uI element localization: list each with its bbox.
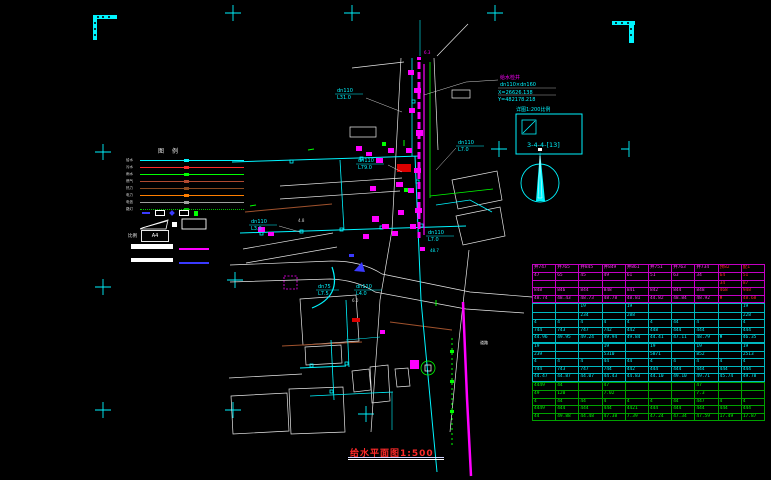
table-cell: 44 [579, 398, 602, 406]
legend-line-marker [184, 173, 189, 176]
blue-dash-symbol [142, 212, 150, 214]
table-cell [579, 390, 602, 398]
table-cell [719, 390, 742, 398]
table-cell: 444 [695, 327, 718, 335]
svg-text:L7.0: L7.0 [428, 237, 439, 243]
table-cell [695, 280, 718, 288]
table-cell: 744 [603, 366, 626, 374]
table-cell: 4 [649, 319, 672, 327]
table-cell: 63 [672, 272, 695, 280]
table-section: 1919192342882284444444444744743747742442… [532, 303, 765, 342]
table-cell: 井734 [695, 265, 718, 272]
table-cell: 743 [556, 327, 579, 335]
table-row: 44494444444444421444444444444444 [533, 405, 764, 413]
table-cell: 44.07 [579, 373, 602, 381]
table-cell: 4 [672, 358, 695, 366]
legend-line-sample [140, 195, 244, 196]
table-row: 444444444444744 [533, 398, 764, 406]
table-cell: 848 [533, 287, 556, 295]
table-cell: 4 [695, 319, 718, 327]
pipe-dimension-labels: dn110L31.0 dn110L79.0 dn110L3.0 dn75L7.5… [249, 88, 484, 297]
table-cell [672, 344, 695, 351]
table-row: 239531058718522513 [533, 351, 764, 359]
brown-utility-lines [245, 204, 452, 346]
table-cell [695, 312, 718, 320]
table-cell: 444 [672, 366, 695, 374]
table-cell [719, 312, 742, 320]
legend-entry-label: 给水 [126, 158, 140, 163]
table-cell: 4 [533, 398, 556, 406]
title-underline [348, 459, 444, 460]
green-mark-symbol [194, 211, 198, 216]
table-cell: 228 [742, 312, 764, 320]
table-cell: 444 [649, 405, 672, 413]
table-cell: 48.92 [695, 295, 718, 303]
table-cell: 49 [533, 390, 556, 398]
table-cell: 61 [626, 272, 649, 280]
table-cell: 744 [533, 327, 556, 335]
hydrant-box [425, 365, 431, 371]
legend-entry-label: 热力 [126, 186, 140, 191]
blue-line-sample [179, 262, 209, 264]
pipe-label: dn110L4.0 [354, 284, 382, 297]
table-cell: 444 [695, 405, 718, 413]
legend-line-sample [140, 188, 244, 189]
sheet-title: 给水平面图1:500 [350, 446, 434, 459]
legend-entry-label: 污水 [126, 165, 140, 170]
table-row: 48.7448.4348.7348.7848.8144.8248.8448.92… [533, 295, 764, 303]
table-cell: 47 [695, 383, 718, 390]
table-row: 848846844848841842844848468948 [533, 287, 764, 295]
table-cell: 444 [672, 327, 695, 335]
table-cell: 468 [719, 287, 742, 295]
frame-corner-top-right [612, 21, 635, 43]
table-cell: 48.73 [579, 295, 602, 303]
table-cell: 19 [533, 344, 556, 351]
table-cell [742, 383, 764, 390]
table-cell: 井845 [579, 265, 602, 272]
table-cell [556, 344, 579, 351]
table-cell: 47 [603, 383, 626, 390]
table-cell: 44 [556, 398, 579, 406]
table-cell [556, 280, 579, 288]
table-cell [649, 304, 672, 311]
table-cell: 19 [579, 304, 602, 311]
svg-text:L4.0: L4.0 [356, 291, 367, 297]
table-cell: 47.59 [695, 413, 718, 421]
scattered-elevation-texts: 4.8 6.0 48.7 6.3 道路 [298, 50, 488, 345]
table-cell: 44 [672, 398, 695, 406]
elevation-text: 6.3 [424, 50, 431, 55]
legend-scale-row: 比例 A4 [128, 230, 169, 242]
table-cell: 44.41 [649, 334, 672, 342]
table-cell: 47.38 [603, 413, 626, 421]
table-cell: 34 [695, 272, 718, 280]
table-cell: 49.94 [603, 334, 626, 342]
legend-line-sample [140, 160, 244, 161]
table-cell: 49.95 [556, 334, 579, 342]
table-cell: 4 [742, 319, 764, 327]
table-cell: 444 [649, 366, 672, 374]
table-cell: 47 [533, 272, 556, 280]
table-cell: 井765 [556, 265, 579, 272]
table-cell [672, 390, 695, 398]
table-cell [719, 351, 742, 359]
table-cell: 47.24 [649, 413, 672, 421]
legend-line-sample [140, 167, 244, 168]
table-cell: 49.10 [672, 373, 695, 381]
table-row: 4449444747 [533, 383, 764, 390]
table-cell: 4449 [533, 405, 556, 413]
svg-text:dn110: dn110 [428, 230, 444, 236]
table-cell: 49.71 [695, 373, 718, 381]
table-cell: 4 [533, 319, 556, 327]
legend-scale-bars [131, 244, 209, 267]
scale-label: 比例 [128, 233, 137, 239]
table-row: 47654549615163346451 [533, 272, 764, 280]
table-cell: 井849 [603, 265, 626, 272]
table-cell [672, 383, 695, 390]
table-row: 234288228 [533, 312, 764, 320]
legend-line-sample [140, 174, 244, 175]
table-cell [649, 280, 672, 288]
table-cell [719, 327, 742, 335]
table-cell [556, 312, 579, 320]
title-underline [348, 457, 444, 458]
annotation-well-name: 给水检井 [500, 74, 520, 81]
table-cell [603, 280, 626, 288]
red-features [352, 164, 411, 322]
table-cell: 7.3 [695, 390, 718, 398]
table-section: 4449444747491207.027.3444444444444744444… [532, 382, 765, 421]
legend-entry-label: 电信 [126, 200, 140, 205]
table-cell: 4 [603, 319, 626, 327]
svg-text:dn110: dn110 [358, 158, 374, 164]
magenta-line-sample [179, 248, 209, 250]
north-arrow [521, 148, 559, 202]
table-cell: 44.87 [556, 373, 579, 381]
legend-line-marker [184, 159, 189, 162]
table-cell: 49.84 [626, 334, 649, 342]
table-row: 4449.8844.4847.387.3947.2447.3447.5917.4… [533, 413, 764, 421]
table-cell: 444 [742, 405, 764, 413]
road-label: 道路 [480, 339, 488, 345]
legend-entry-label: 雨水 [126, 172, 140, 177]
table-cell: 444 [603, 405, 626, 413]
pipe-label: dn75L7.5 [316, 284, 339, 297]
table-row: 1919191919 [533, 344, 764, 351]
table-cell: 5310 [603, 351, 626, 359]
table-cell: 预82 [719, 265, 742, 272]
table-row: 44.4744.8744.0744.4344.8344.1049.1049.71… [533, 373, 764, 381]
table-cell [556, 304, 579, 311]
table-cell: 447 [695, 398, 718, 406]
table-cell: 44 [672, 319, 695, 327]
table-cell [626, 390, 649, 398]
table-cell: 288 [626, 312, 649, 320]
table-row: 4444444444 [533, 319, 764, 327]
table-cell: 444 [719, 405, 742, 413]
table-cell: 48.81 [626, 295, 649, 303]
table-cell: 井751 [649, 265, 672, 272]
annotation-x-coord: X=26626.138 [498, 90, 533, 96]
table-cell: 51 [649, 272, 672, 280]
table-cell [579, 383, 602, 390]
table-cell [579, 280, 602, 288]
legend-lines: 给水污水雨水燃气热力电力电信路灯 [126, 157, 244, 213]
table-cell [672, 312, 695, 320]
table-cell: 444 [579, 405, 602, 413]
table-cell: 配1 [742, 265, 764, 272]
table-cell: 120 [556, 390, 579, 398]
table-row: 491207.027.3 [533, 390, 764, 398]
table-cell: 44.10 [649, 373, 672, 381]
table-cell: 742 [603, 327, 626, 335]
table-cell: 49.78 [742, 373, 764, 381]
table-cell: 49.88 [556, 413, 579, 421]
legend-line-marker [184, 201, 189, 204]
table-cell: 44 [603, 358, 626, 366]
table-cell: 65 [556, 272, 579, 280]
table-cell: 井747 [533, 265, 556, 272]
table-cell: 井861 [626, 265, 649, 272]
table-cell: 44 [556, 383, 579, 390]
table-cell: 井763 [672, 265, 695, 272]
table-cell: 7.39 [626, 413, 649, 421]
coordinate-annotation: 给水检井 dn110×dn160 X=26626.138 Y=482178.21… [497, 74, 556, 103]
table-cell: 44.48 [579, 413, 602, 421]
table-cell: 19 [742, 304, 764, 311]
table-cell: 64 [719, 272, 742, 280]
table-row: 444444444444 [533, 358, 764, 366]
table-cell: 448 [649, 327, 672, 335]
svg-text:L79.0: L79.0 [358, 165, 372, 171]
table-cell: 852 [695, 351, 718, 359]
magenta-hatch-blobs [258, 57, 425, 369]
table-cell: 4 [626, 319, 649, 327]
table-row: 44.9649.9549.2449.9449.8444.4147.1148.79… [533, 334, 764, 342]
table-cell: 48.68 [742, 295, 764, 303]
svg-text:L31.0: L31.0 [337, 95, 351, 101]
detail-reference-box: 详图1:200比例 3-4-4-[13] [516, 106, 582, 154]
table-row: 744743747744442444444444444444 [533, 366, 764, 374]
table-cell: 848 [603, 287, 626, 295]
table-cell [626, 351, 649, 359]
table-section: 井747井765井845井849井861井751井763井734预82配1476… [532, 264, 765, 303]
table-cell: 19 [742, 344, 764, 351]
paper-size-box: A4 [141, 230, 169, 242]
table-cell: 19 [626, 304, 649, 311]
table-section: 1919191919239531058718522513444444444444… [532, 343, 765, 382]
table-row: 井747井765井845井849井861井751井763井734预82配1 [533, 265, 764, 272]
cad-viewport: 给水检井 dn110×dn160 X=26626.138 Y=482178.21… [0, 0, 771, 480]
table-cell: 744 [533, 366, 556, 374]
table-cell: 442 [626, 327, 649, 335]
table-cell [649, 312, 672, 320]
table-cell: 747 [579, 366, 602, 374]
table-cell: 87 [742, 280, 764, 288]
table-cell: 34 [719, 280, 742, 288]
legend-entry-label: 路灯 [126, 207, 140, 212]
leader-lines [279, 80, 498, 232]
frame-corner-top-left [93, 15, 117, 40]
table-cell: 47.11 [672, 334, 695, 342]
elevation-text: 48.7 [430, 248, 439, 253]
table-cell: 48.79 [695, 334, 718, 342]
table-cell: 4 [742, 358, 764, 366]
table-cell: 444 [672, 405, 695, 413]
table-cell [719, 304, 742, 311]
table-cell: 234 [579, 312, 602, 320]
table-cell: 442 [626, 366, 649, 374]
table-cell: 747 [579, 327, 602, 335]
table-cell: 444 [742, 327, 764, 335]
table-cell: 844 [672, 287, 695, 295]
table-cell: 49.24 [579, 334, 602, 342]
table-cell: 46.35 [742, 334, 764, 342]
table-cell: 4 [556, 358, 579, 366]
table-cell: 45.74 [719, 373, 742, 381]
table-cell [672, 351, 695, 359]
legend-line-marker [184, 194, 189, 197]
table-cell: 48.84 [672, 295, 695, 303]
table-cell: 49 [603, 272, 626, 280]
table-cell: 44 [533, 413, 556, 421]
table-cell: 743 [556, 366, 579, 374]
table-row: 744743747742442448444444444 [533, 327, 764, 335]
table-cell: 44.96 [533, 334, 556, 342]
table-cell [626, 344, 649, 351]
svg-text:dn110: dn110 [356, 284, 372, 290]
table-cell: 848 [695, 287, 718, 295]
table-cell: 842 [649, 287, 672, 295]
pipe-data-table: 井747井765井845井849井861井751井763井734预82配1476… [532, 264, 765, 421]
table-cell [603, 304, 626, 311]
legend-entry-label: 电力 [126, 193, 140, 198]
legend-line-marker [184, 166, 189, 169]
table-cell: 47.34 [672, 413, 695, 421]
table-cell: 4449 [533, 383, 556, 390]
table-cell: 844 [579, 287, 602, 295]
table-cell [603, 312, 626, 320]
table-cell: 44.83 [626, 373, 649, 381]
svg-text:dn110: dn110 [251, 219, 267, 225]
table-cell: Φ [719, 295, 742, 303]
table-cell: 4 [695, 358, 718, 366]
table-cell: 4 [579, 358, 602, 366]
table-cell: 4 [719, 358, 742, 366]
table-cell: 239 [533, 351, 556, 359]
svg-text:L3.0: L3.0 [251, 226, 262, 232]
table-cell: 19 [603, 344, 626, 351]
table-cell: 4 [579, 319, 602, 327]
table-cell: 48.78 [603, 295, 626, 303]
table-cell: 444 [556, 405, 579, 413]
table-cell: 444 [742, 366, 764, 374]
detail-box-code: 3-4-4-[13] [527, 141, 560, 149]
table-cell [695, 304, 718, 311]
table-cell: 44 [626, 358, 649, 366]
table-cell: 4 [556, 319, 579, 327]
table-cell: 846 [556, 287, 579, 295]
table-cell: 17.87 [742, 413, 764, 421]
table-cell [719, 344, 742, 351]
legend-title: 图例 [158, 146, 186, 155]
table-cell: 444 [695, 366, 718, 374]
table-cell: 4 [649, 358, 672, 366]
table-cell [649, 390, 672, 398]
table-cell: 4 [649, 398, 672, 406]
table-row: 191919 [533, 304, 764, 311]
annotation-y-coord: Y=482178.218 [497, 97, 535, 103]
svg-text:dn110: dn110 [337, 88, 353, 94]
table-cell [719, 383, 742, 390]
table-cell [533, 312, 556, 320]
table-cell: 948 [742, 287, 764, 295]
table-cell: 4421 [626, 405, 649, 413]
table-cell: 4 [719, 398, 742, 406]
pipe-label: dn110L7.0 [426, 230, 454, 243]
table-cell [626, 383, 649, 390]
elevation-text: 4.8 [298, 218, 305, 223]
legend-slope-symbols [140, 217, 240, 231]
table-cell: 7.02 [603, 390, 626, 398]
table-cell: 4 [533, 358, 556, 366]
blue-diamond-symbol [169, 210, 175, 216]
legend-line-sample [140, 202, 244, 203]
legend-line-marker [184, 187, 189, 190]
table-cell: 44.47 [533, 373, 556, 381]
table-row: 3487 [533, 280, 764, 288]
pipe-label: dn110L31.0 [335, 88, 363, 101]
table-cell: 841 [626, 287, 649, 295]
pipe-label: dn110L7.0 [456, 140, 484, 153]
table-cell: 48.74 [533, 295, 556, 303]
table-cell: 2513 [742, 351, 764, 359]
svg-text:dn110: dn110 [458, 140, 474, 146]
table-cell [626, 280, 649, 288]
scale-bar [131, 244, 173, 249]
table-cell [672, 304, 695, 311]
elevation-text: 6.0 [352, 298, 359, 303]
table-cell: 44.82 [649, 295, 672, 303]
table-cell: 19 [695, 344, 718, 351]
table-cell: 4 [603, 398, 626, 406]
table-cell: 444 [719, 366, 742, 374]
svg-text:L7.0: L7.0 [458, 147, 469, 153]
table-cell [719, 319, 742, 327]
blue-features [349, 254, 365, 272]
svg-text:dn75: dn75 [318, 284, 331, 290]
table-cell: Φ [719, 334, 742, 342]
table-cell [649, 383, 672, 390]
table-cell: 51 [742, 272, 764, 280]
table-cell [533, 304, 556, 311]
table-cell: 48.43 [556, 295, 579, 303]
table-cell: 4 [742, 398, 764, 406]
table-cell [579, 351, 602, 359]
table-cell [579, 344, 602, 351]
table-cell: 4 [626, 398, 649, 406]
table-cell: 19 [649, 344, 672, 351]
table-cell: 5871 [649, 351, 672, 359]
legend-line-marker [184, 180, 189, 183]
annotation-dn: dn110×dn160 [500, 82, 536, 88]
table-cell [672, 280, 695, 288]
table-cell: 44.43 [603, 373, 626, 381]
table-cell [556, 351, 579, 359]
svg-text:L7.5: L7.5 [318, 291, 329, 297]
